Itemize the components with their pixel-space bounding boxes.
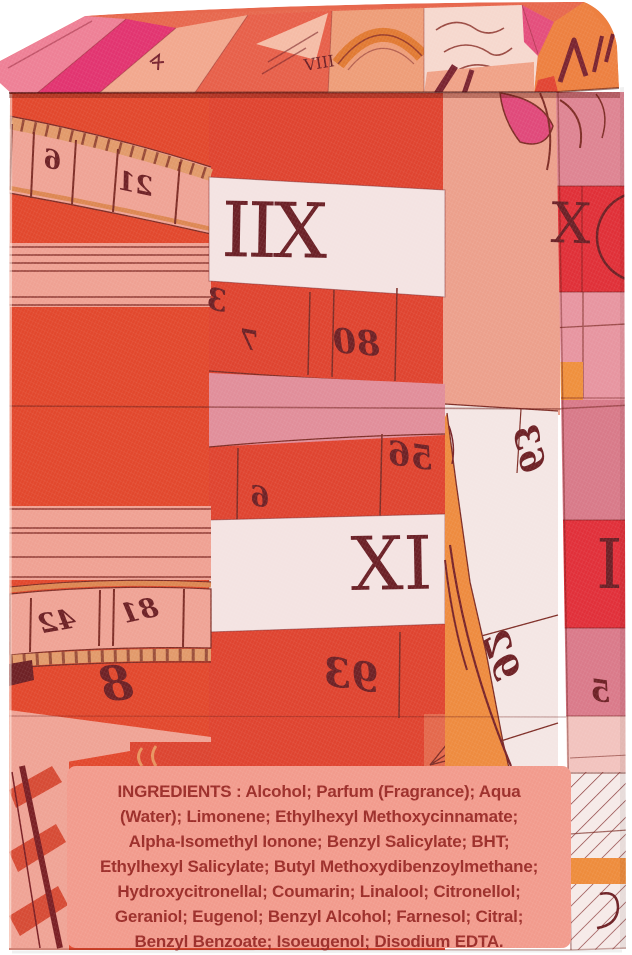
- box-lid: [0, 2, 619, 94]
- marking-arc-24: 24: [36, 605, 78, 638]
- marking-side-x: X: [550, 196, 592, 253]
- ingredients-line: Ethylhexyl Salicylate; Butyl Methoxydibe…: [100, 854, 538, 879]
- gnomon-stripe-area: [9, 750, 69, 950]
- marking-side-5: 5: [588, 676, 613, 709]
- marking-side-i: I: [596, 532, 623, 600]
- marking-roman-iix: IIX: [221, 192, 324, 270]
- ingredients-line: INGREDIENTS : Alcohol; Parfum (Fragrance…: [117, 779, 520, 804]
- marking-cell-65: 65: [385, 436, 435, 475]
- marking-lid-viii: VIII: [303, 53, 336, 74]
- marking-arc-18: 18: [118, 594, 160, 628]
- ingredients-label: INGREDIENTS : Alcohol; Parfum (Fragrance…: [67, 766, 571, 948]
- marking-cell-39: 39: [320, 652, 381, 699]
- perfume-box-photo: 6 12 IIX 3 7 08 65 6 XI 39 36 29 24 18 8…: [0, 0, 632, 955]
- marking-band-36: 36: [507, 422, 550, 475]
- marking-tape-12: 12: [115, 168, 156, 201]
- marking-cell-08: 08: [331, 324, 381, 362]
- ingredients-line: Geraniol; Eugenol; Benzyl Alcohol; Farne…: [115, 904, 523, 929]
- stripe-block-upper: [9, 243, 211, 307]
- marking-cell-6: 6: [248, 482, 271, 512]
- marking-roman-xi: XI: [350, 527, 433, 602]
- ingredients-line: Alpha-Isomethyl Ionone; Benzyl Salicylat…: [129, 829, 510, 854]
- ingredients-line: Hydroxycitronellal; Coumarin; Linalool; …: [117, 879, 520, 904]
- ingredients-line: Benzyl Benzoate; Isoeugenol; Disodium ED…: [135, 929, 504, 954]
- marking-arc-8: 8: [97, 659, 135, 710]
- ingredients-line: (Water); Limonene; Ethylhexyl Methoxycin…: [120, 804, 518, 829]
- stripe-block-lower: [9, 506, 211, 580]
